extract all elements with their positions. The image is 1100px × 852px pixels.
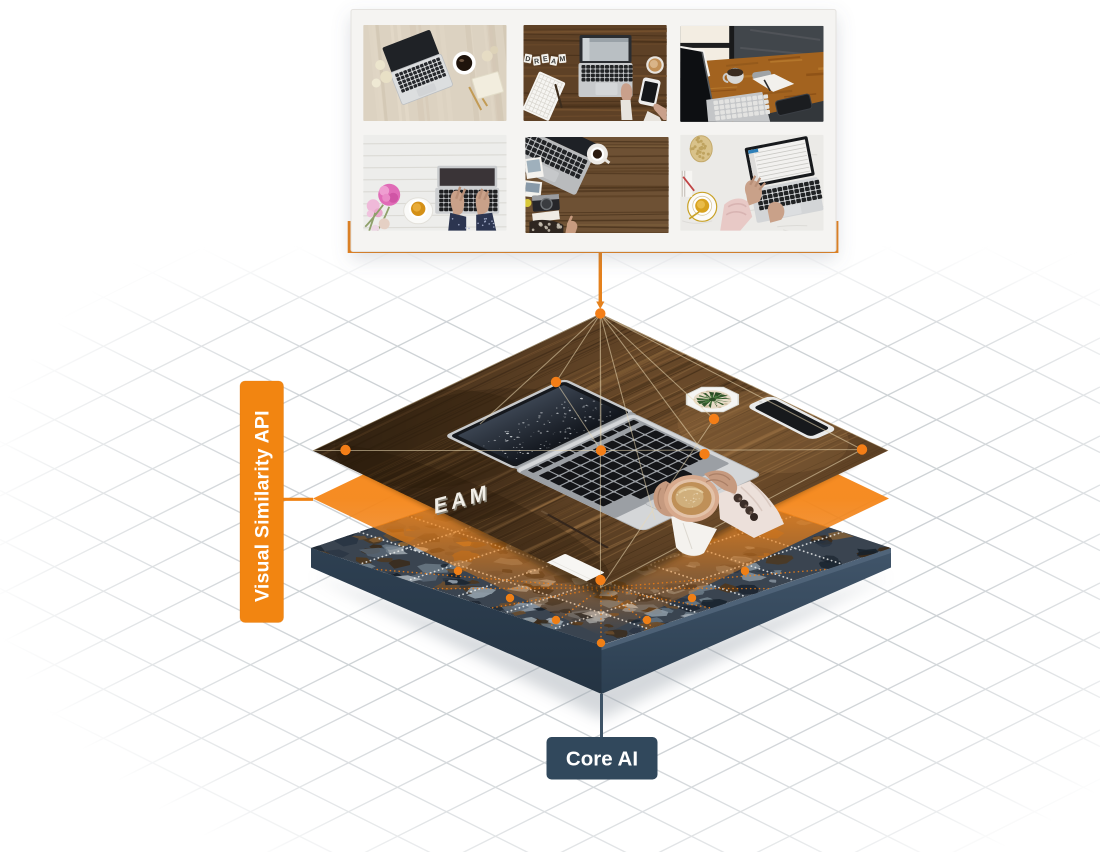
svg-text:Visual Similarity API: Visual Similarity API	[252, 410, 274, 602]
svg-text:R: R	[534, 58, 540, 66]
svg-text:M: M	[559, 56, 566, 64]
svg-text:Core AI: Core AI	[566, 748, 638, 771]
